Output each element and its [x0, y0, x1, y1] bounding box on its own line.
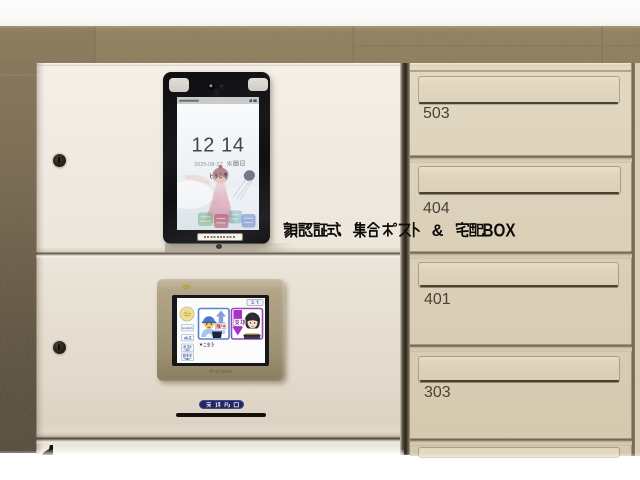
svg-text:&: & [432, 222, 444, 239]
svg-text:2025-08-27: 2025-08-27 [194, 162, 223, 168]
svg-text:12 14: 12 14 [191, 135, 244, 157]
svg-text:English: English [182, 326, 192, 330]
svg-text:BOX: BOX [483, 222, 517, 239]
